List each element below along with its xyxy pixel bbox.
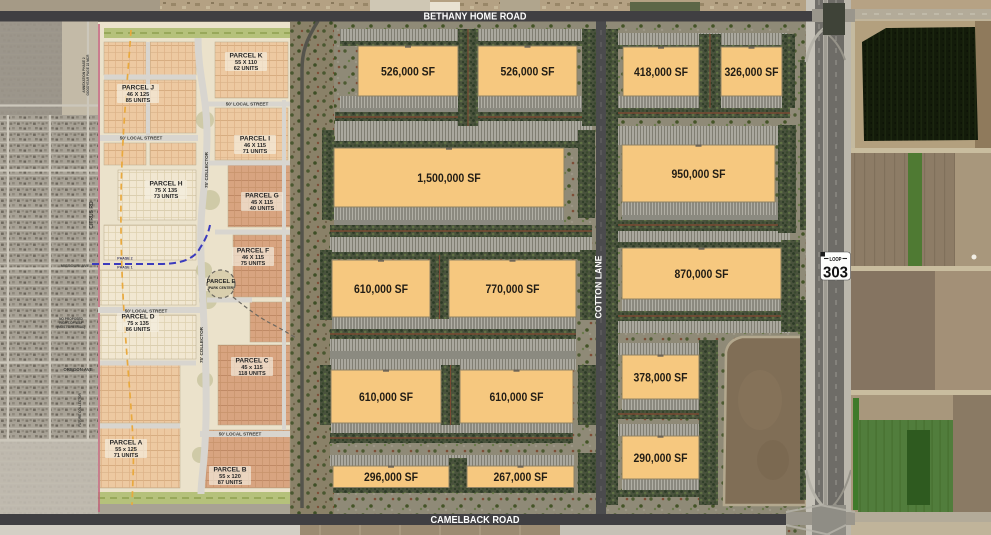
svg-text:PHASE 2: PHASE 2 xyxy=(117,257,132,261)
svg-text:610,000 SF: 610,000 SF xyxy=(359,390,413,404)
svg-text:PARCEL J: PARCEL J xyxy=(122,85,154,92)
svg-text:PARCEL G: PARCEL G xyxy=(245,193,278,200)
svg-text:OREGON AVE: OREGON AVE xyxy=(63,367,92,372)
svg-text:118 UNITS: 118 UNITS xyxy=(238,371,266,377)
svg-text:50' LOCAL STREET: 50' LOCAL STREET xyxy=(125,309,168,314)
svg-text:PARCEL H: PARCEL H xyxy=(149,181,182,188)
svg-text:267,000 SF: 267,000 SF xyxy=(494,470,548,484)
svg-text:950,000 SF: 950,000 SF xyxy=(672,167,726,181)
svg-text:50' LOCAL STREET: 50' LOCAL STREET xyxy=(219,432,262,437)
svg-text:526,000 SF: 526,000 SF xyxy=(501,64,555,78)
svg-text:46 X 115: 46 X 115 xyxy=(244,143,266,149)
svg-text:PARCEL E: PARCEL E xyxy=(207,279,236,285)
svg-text:PARCEL I: PARCEL I xyxy=(240,136,270,143)
svg-text:75 X 135: 75 X 135 xyxy=(155,188,177,194)
svg-text:55 x 125: 55 x 125 xyxy=(115,447,137,453)
svg-text:BETHANY HOME ROAD: BETHANY HOME ROAD xyxy=(424,11,527,22)
svg-text:296,000 SF: 296,000 SF xyxy=(364,470,418,484)
svg-text:PARCEL D: PARCEL D xyxy=(121,314,154,321)
svg-text:71 UNITS: 71 UNITS xyxy=(114,453,139,459)
svg-text:55 x 120: 55 x 120 xyxy=(219,474,241,480)
svg-text:55 X 110: 55 X 110 xyxy=(235,60,257,66)
svg-text:85 UNITS: 85 UNITS xyxy=(126,98,151,104)
svg-text:610,000 SF: 610,000 SF xyxy=(354,282,408,296)
svg-text:326,000 SF: 326,000 SF xyxy=(725,65,779,79)
svg-text:LOOP: LOOP xyxy=(830,257,842,263)
svg-text:GOODYEAR PAGE 22 MCR: GOODYEAR PAGE 22 MCR xyxy=(86,54,90,96)
svg-text:73 UNITS: 73 UNITS xyxy=(154,194,179,200)
svg-text:MISSOURI AVE: MISSOURI AVE xyxy=(61,263,90,268)
svg-text:(MOST ARTERIAL): (MOST ARTERIAL) xyxy=(57,325,85,329)
svg-text:PARCEL B: PARCEL B xyxy=(213,467,246,474)
svg-text:46 X 115: 46 X 115 xyxy=(242,255,264,261)
svg-text:75 x 135: 75 x 135 xyxy=(127,321,149,327)
svg-text:PARCEL F: PARCEL F xyxy=(237,248,269,255)
svg-text:45 x 115: 45 x 115 xyxy=(241,365,262,371)
svg-text:75 UNITS: 75 UNITS xyxy=(241,261,266,267)
svg-text:378,000 SF: 378,000 SF xyxy=(634,370,688,384)
svg-text:62 UNITS: 62 UNITS xyxy=(234,66,259,72)
svg-text:FUTURE COLLECTOR: FUTURE COLLECTOR xyxy=(78,393,82,427)
svg-text:50' LOCAL STREET: 50' LOCAL STREET xyxy=(226,102,269,107)
svg-text:610,000 SF: 610,000 SF xyxy=(490,390,544,404)
svg-text:86 UNITS: 86 UNITS xyxy=(126,327,151,333)
svg-text:526,000 SF: 526,000 SF xyxy=(381,64,435,78)
svg-text:CITRUS RD: CITRUS RD xyxy=(89,201,95,229)
svg-text:1,500,000 SF: 1,500,000 SF xyxy=(417,171,481,185)
svg-text:PARCEL A: PARCEL A xyxy=(110,440,143,447)
svg-text:75' COLLECTOR: 75' COLLECTOR xyxy=(199,326,204,363)
svg-text:87 UNITS: 87 UNITS xyxy=(218,480,243,486)
svg-text:303: 303 xyxy=(823,265,848,282)
svg-text:770,000 SF: 770,000 SF xyxy=(486,282,540,296)
svg-text:PARCEL C: PARCEL C xyxy=(235,358,268,365)
svg-text:PARCEL K: PARCEL K xyxy=(229,53,262,60)
svg-text:40 UNITS: 40 UNITS xyxy=(250,206,275,212)
svg-text:PHASE 1: PHASE 1 xyxy=(117,266,132,270)
svg-text:45 X 115: 45 X 115 xyxy=(251,200,273,206)
svg-text:COTTON LANE: COTTON LANE xyxy=(594,256,605,319)
svg-text:50' LOCAL STREET: 50' LOCAL STREET xyxy=(120,136,163,141)
svg-text:46 X 125: 46 X 125 xyxy=(127,92,149,98)
svg-text:290,000 SF: 290,000 SF xyxy=(634,451,688,465)
svg-text:CAMELBACK ROAD: CAMELBACK ROAD xyxy=(431,515,520,526)
svg-text:870,000 SF: 870,000 SF xyxy=(675,267,729,281)
svg-text:(PARK CENTER): (PARK CENTER) xyxy=(208,286,235,290)
svg-text:75' COLLECTOR: 75' COLLECTOR xyxy=(204,151,209,188)
svg-text:71 UNITS: 71 UNITS xyxy=(243,149,268,155)
svg-text:418,000 SF: 418,000 SF xyxy=(634,65,688,79)
